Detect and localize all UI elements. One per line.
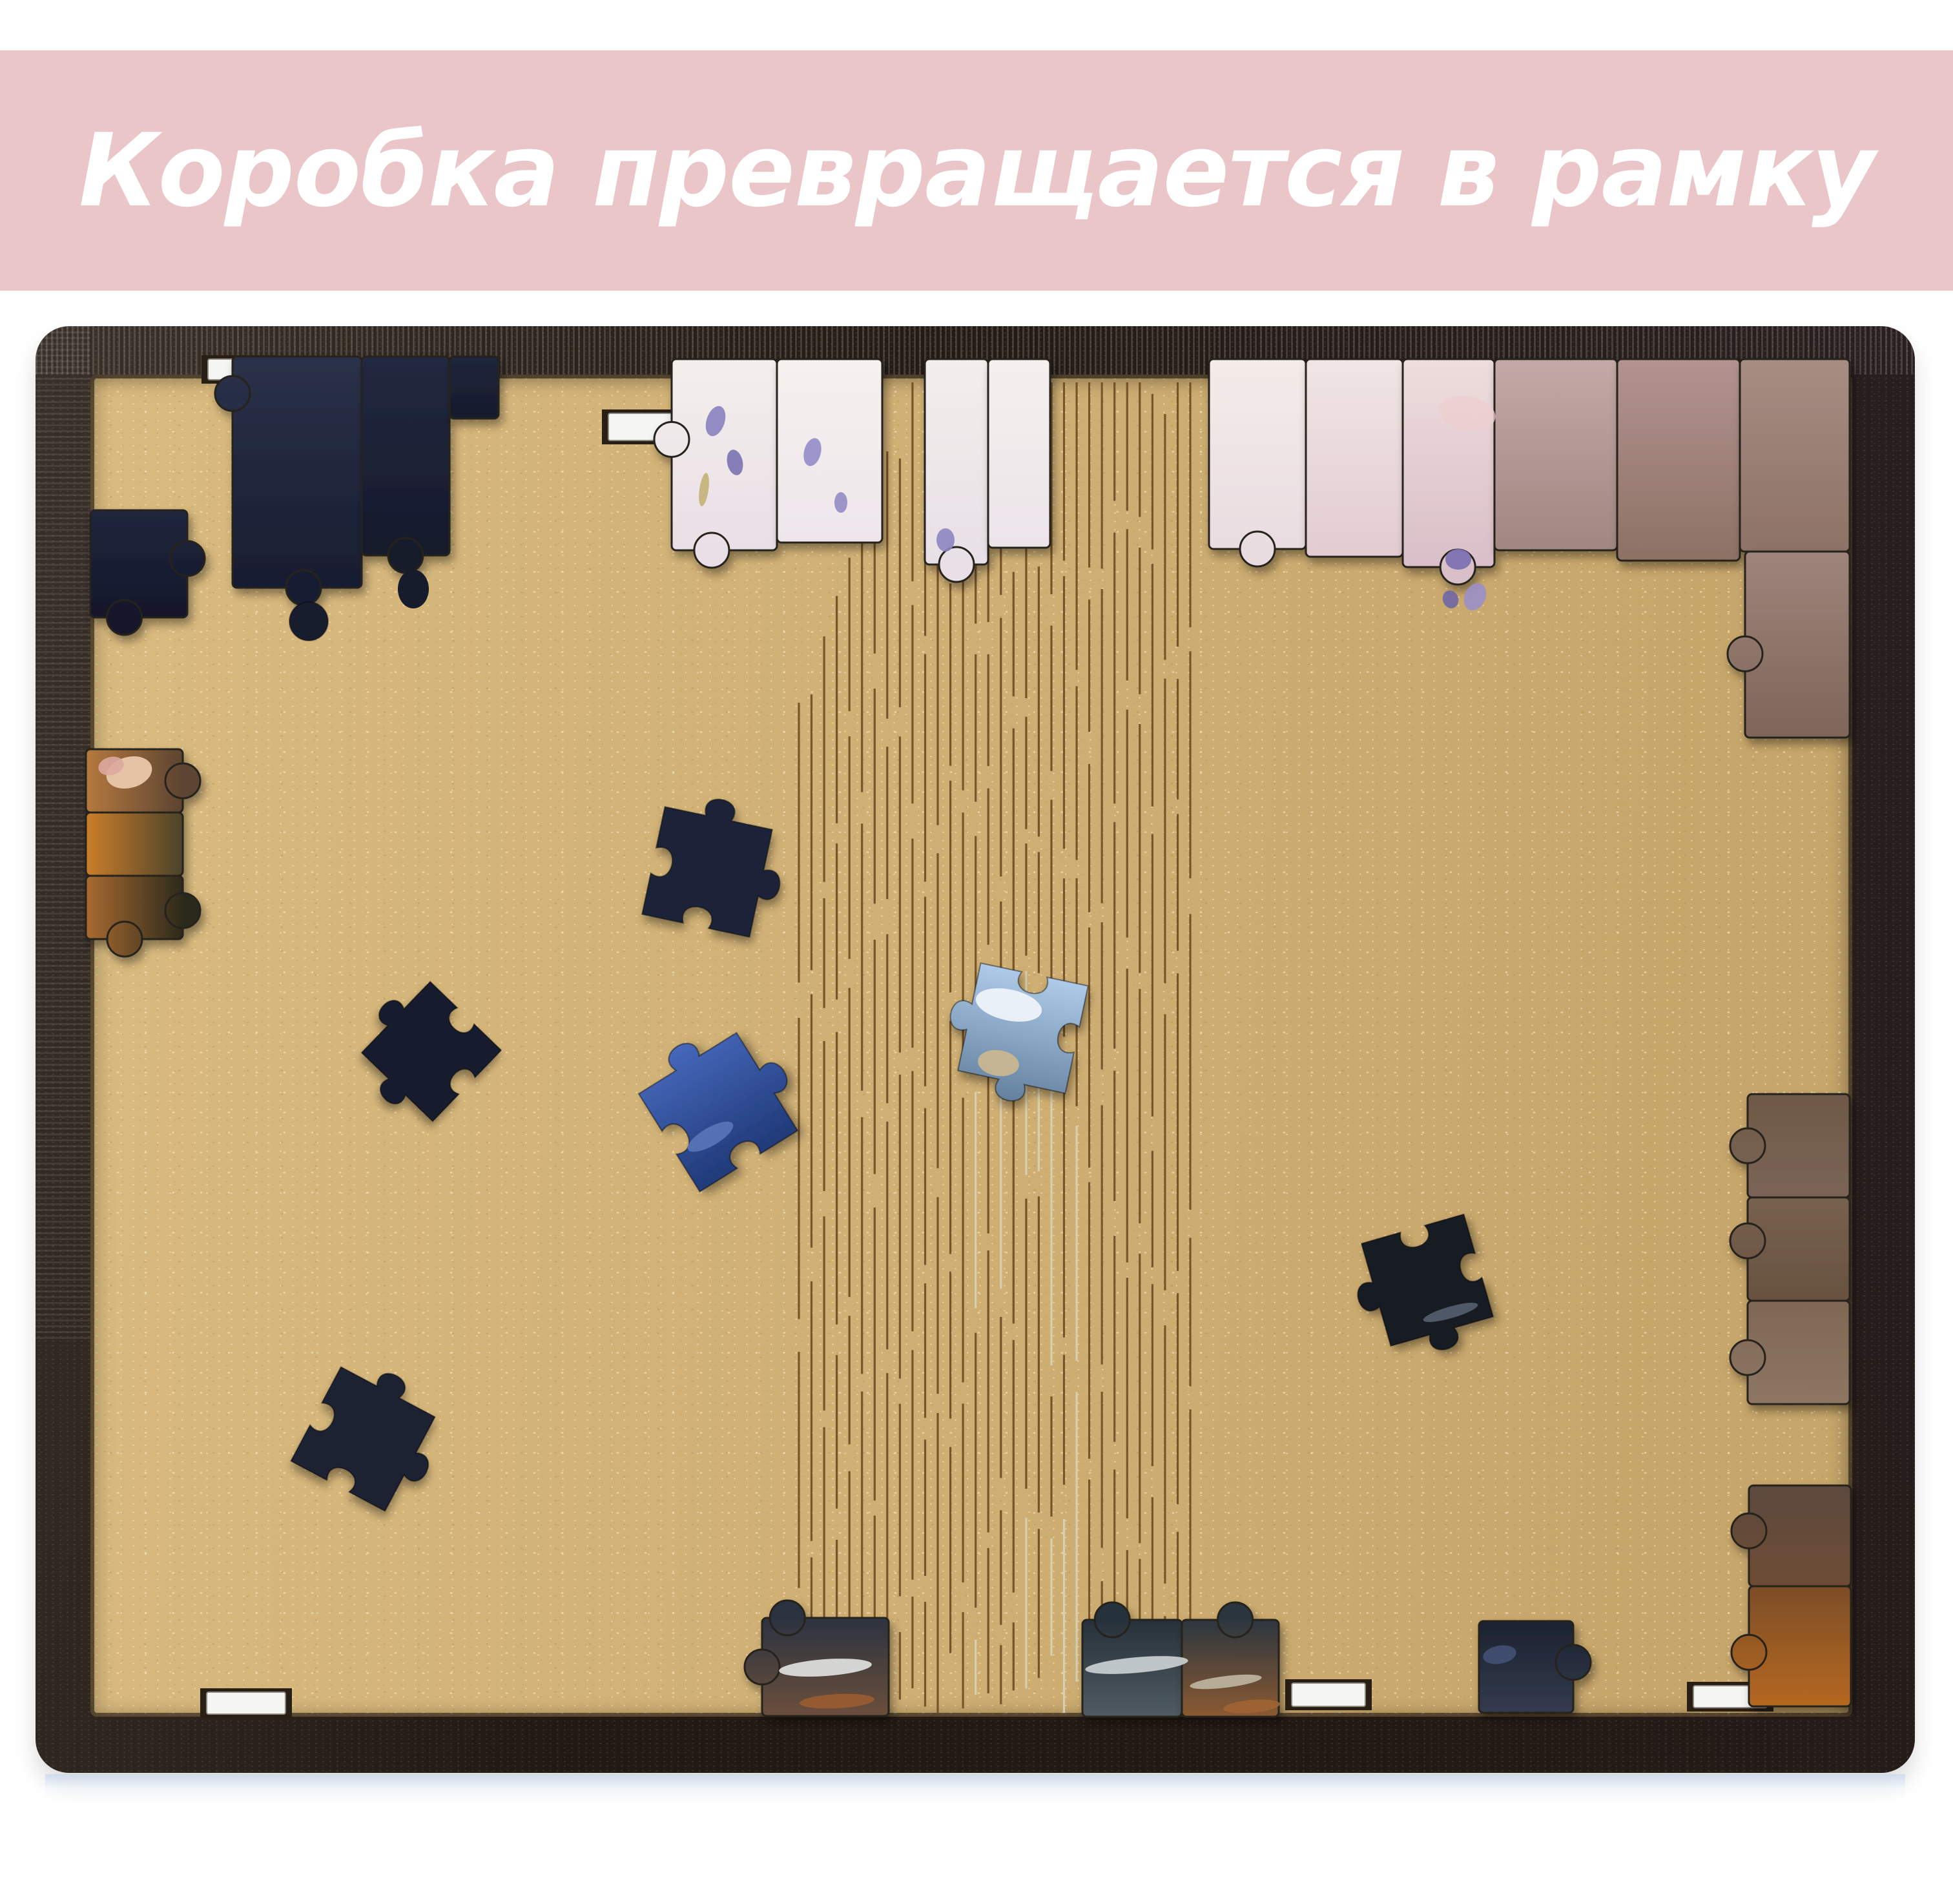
mdf-backing-board — [90, 375, 1852, 1717]
puzzle-frame-board — [36, 326, 1915, 1773]
frame-sheen — [36, 326, 1915, 375]
frame-sheen-left — [36, 326, 90, 1339]
product-photo — [0, 0, 1953, 1904]
page: Коробка превращается в рамку — [0, 0, 1953, 1904]
table-reflection — [45, 1774, 1905, 1800]
